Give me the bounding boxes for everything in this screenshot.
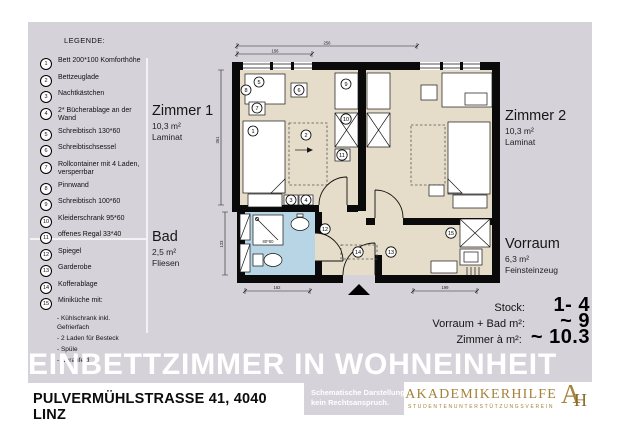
legend-item: 8Pinnwand (40, 182, 144, 195)
legend-number-badge: 7 (40, 162, 52, 174)
sink-icon (291, 218, 309, 231)
legend-item-label: 2* Bücherablage an der Wand (58, 107, 144, 125)
legend-number-badge: 5 (40, 129, 52, 141)
window-zimmer2 (420, 62, 480, 70)
stats-label: Zimmer à m²: (456, 334, 521, 346)
marker-14: 14 (355, 250, 361, 256)
sink-tap (297, 214, 303, 217)
page-title: EINBETTZIMMER IN WOHNEINHEIT (28, 348, 592, 382)
ah-monogram-icon: A H (561, 384, 589, 414)
room-name: Zimmer 1 (152, 103, 213, 119)
legend-divider-vertical (146, 58, 148, 333)
dim-bottom-bad: 162 (274, 285, 282, 290)
legend-number-badge: 10 (40, 216, 52, 228)
logo-text: AKADEMIKERHILFE STUDENTENUNTERSTÜTZUNGSV… (405, 387, 557, 410)
room-name: Zimmer 2 (505, 108, 566, 124)
dim-top-inner: 156 (272, 49, 280, 54)
marker-1: 1 (251, 129, 254, 135)
chair-icon (421, 85, 437, 100)
legend-item: 7Rollcontainer mit 4 Laden, versperrbar (40, 161, 144, 179)
legend-title: LEGENDE: (64, 36, 144, 45)
legend-item: 5Schreibtisch 130*60 (40, 128, 144, 141)
legend-item: 42* Bücherablage an der Wand (40, 107, 144, 125)
stats-value: ~ 10.3 (531, 326, 590, 349)
legend-item: 12Spiegel (40, 248, 144, 261)
address-box: PULVERMÜHLSTRASSE 41, 4040 LINZ (28, 383, 304, 415)
legend-item-label: Bettzeuglade (58, 74, 99, 83)
marker-11: 11 (339, 153, 345, 159)
legend-item: 1Bett 200*100 Komforthöhe (40, 57, 144, 70)
desk2-icon (335, 73, 358, 109)
disclaimer: Schematische Darstellung, kein Rechtsans… (311, 388, 407, 408)
legend-number-badge: 4 (40, 108, 52, 120)
legend-item-label: Nachtkästchen (58, 90, 104, 99)
room-area: 10,3 m² (152, 121, 181, 131)
marker-7: 7 (255, 106, 258, 112)
legend-number-badge: 12 (40, 249, 52, 261)
marker-5: 5 (257, 80, 260, 86)
marker-10: 10 (343, 117, 349, 123)
marker-3: 3 (289, 198, 292, 204)
logo-subtitle: STUDENTENUNTERSTÜTZUNGSVEREIN (405, 404, 557, 410)
stats-row: Stock: 1- 4 (432, 294, 590, 310)
shower-dim-label: 80*80 (263, 239, 275, 244)
room-label-zimmer2: Zimmer 2 10,3 m² Laminat (505, 108, 566, 148)
bed-drawer-icon (248, 194, 282, 207)
legend-number-badge: 11 (40, 232, 52, 244)
marker-4: 4 (304, 198, 307, 204)
room-floor: Feinsteinzeug (505, 265, 558, 275)
kitchen-drawer-icon (460, 249, 482, 265)
minikueche-detail: - 2 Laden für Besteck (57, 334, 144, 344)
legend-item-label: Spiegel (58, 248, 81, 257)
legend-item-label: Pinnwand (58, 182, 89, 191)
marker-2: 2 (304, 133, 307, 139)
legend-number-badge: 15 (40, 298, 52, 310)
disclaimer-line: kein Rechtsanspruch. (311, 398, 407, 408)
toilet-tank (253, 254, 263, 266)
nightstand-icon (429, 185, 444, 196)
minikueche-detail: - Kühlschrank inkl. Gefrierfach (57, 314, 144, 334)
legend-item: 11offenes Regal 33*40 (40, 231, 144, 244)
legend-number-badge: 13 (40, 265, 52, 277)
legend-item: 10Kleiderschrank 95*60 (40, 215, 144, 228)
marker-8: 8 (244, 88, 247, 94)
marker-15: 15 (448, 231, 454, 237)
legend-item-label: Bett 200*100 Komforthöhe (58, 57, 141, 66)
desk-inset (465, 93, 487, 105)
legend-number-badge: 9 (40, 199, 52, 211)
entrance-arrow-icon (348, 284, 370, 295)
stats: Stock: 1- 4 Vorraum + Bad m²: ~ 9 Zimmer… (432, 294, 590, 342)
legend-item: 6Schreibtischsessel (40, 144, 144, 157)
stats-label: Stock: (494, 302, 525, 314)
logo-name: AKADEMIKERHILFE (405, 387, 557, 403)
room-label-bad: Bad 2,5 m² Fliesen (152, 229, 179, 269)
legend-item-label: Kofferablage (58, 281, 98, 290)
legend-item-label: Miniküche mit: (58, 297, 103, 306)
room-name: Bad (152, 229, 179, 245)
floor-plan: 80*80 256 156 361 123 162 199 1 2 3 4 5 (215, 33, 510, 301)
dim-bad-height: 123 (219, 240, 224, 248)
marker-6: 6 (297, 88, 300, 94)
legend-item-label: Schreibtisch 130*60 (58, 128, 120, 137)
legend-item-label: Rollcontainer mit 4 Laden, versperrbar (58, 161, 144, 179)
desk-icon (367, 73, 390, 109)
legend-item: 9Schreibtisch 100*60 (40, 198, 144, 211)
legend-number-badge: 1 (40, 58, 52, 70)
bench-icon (431, 261, 457, 273)
bed-icon (448, 122, 490, 194)
room-label-zimmer1: Zimmer 1 10,3 m² Laminat (152, 103, 213, 143)
dim-bottom-vorraum: 199 (442, 285, 450, 290)
legend-number-badge: 8 (40, 183, 52, 195)
legend-item: 2Bettzeuglade (40, 74, 144, 87)
legend: LEGENDE: 1Bett 200*100 Komforthöhe 2Bett… (40, 36, 144, 365)
marker-9: 9 (344, 82, 347, 88)
room-name: Vorraum (505, 236, 560, 252)
dim-room-height: 361 (215, 136, 220, 144)
legend-number-badge: 3 (40, 91, 52, 103)
legend-item: 3Nachtkästchen (40, 90, 144, 103)
monogram-h: H (574, 390, 587, 411)
address-text: PULVERMÜHLSTRASSE 41, 4040 LINZ (28, 383, 304, 423)
room-floor: Laminat (152, 132, 182, 142)
legend-item-label: Kleiderschrank 95*60 (58, 215, 125, 224)
legend-item: 13Garderobe (40, 264, 144, 277)
stats-label: Vorraum + Bad m²: (432, 318, 525, 330)
legend-number-badge: 2 (40, 75, 52, 87)
legend-item-label: Schreibtischsessel (58, 144, 116, 153)
disclaimer-line: Schematische Darstellung, (311, 388, 407, 398)
window-zimmer1 (243, 62, 312, 70)
room-area: 2,5 m² (152, 247, 176, 257)
legend-item-label: Garderobe (58, 264, 91, 273)
bed-drawer-icon (453, 195, 487, 208)
marker-13: 13 (388, 250, 394, 256)
dim-top-outer: 256 (324, 41, 332, 46)
legend-item: 15Miniküche mit: (40, 297, 144, 310)
room-floor: Fliesen (152, 258, 179, 268)
marker-12: 12 (322, 227, 328, 233)
legend-number-badge: 14 (40, 282, 52, 294)
akademikerhilfe-logo: AKADEMIKERHILFE STUDENTENUNTERSTÜTZUNGSV… (404, 382, 592, 415)
legend-item-label: offenes Regal 33*40 (58, 231, 121, 240)
legend-number-badge: 6 (40, 145, 52, 157)
legend-item: 14Kofferablage (40, 281, 144, 294)
legend-item-label: Schreibtisch 100*60 (58, 198, 120, 207)
toilet-icon (264, 254, 282, 267)
room-label-vorraum: Vorraum 6,3 m² Feinsteinzeug (505, 236, 560, 276)
